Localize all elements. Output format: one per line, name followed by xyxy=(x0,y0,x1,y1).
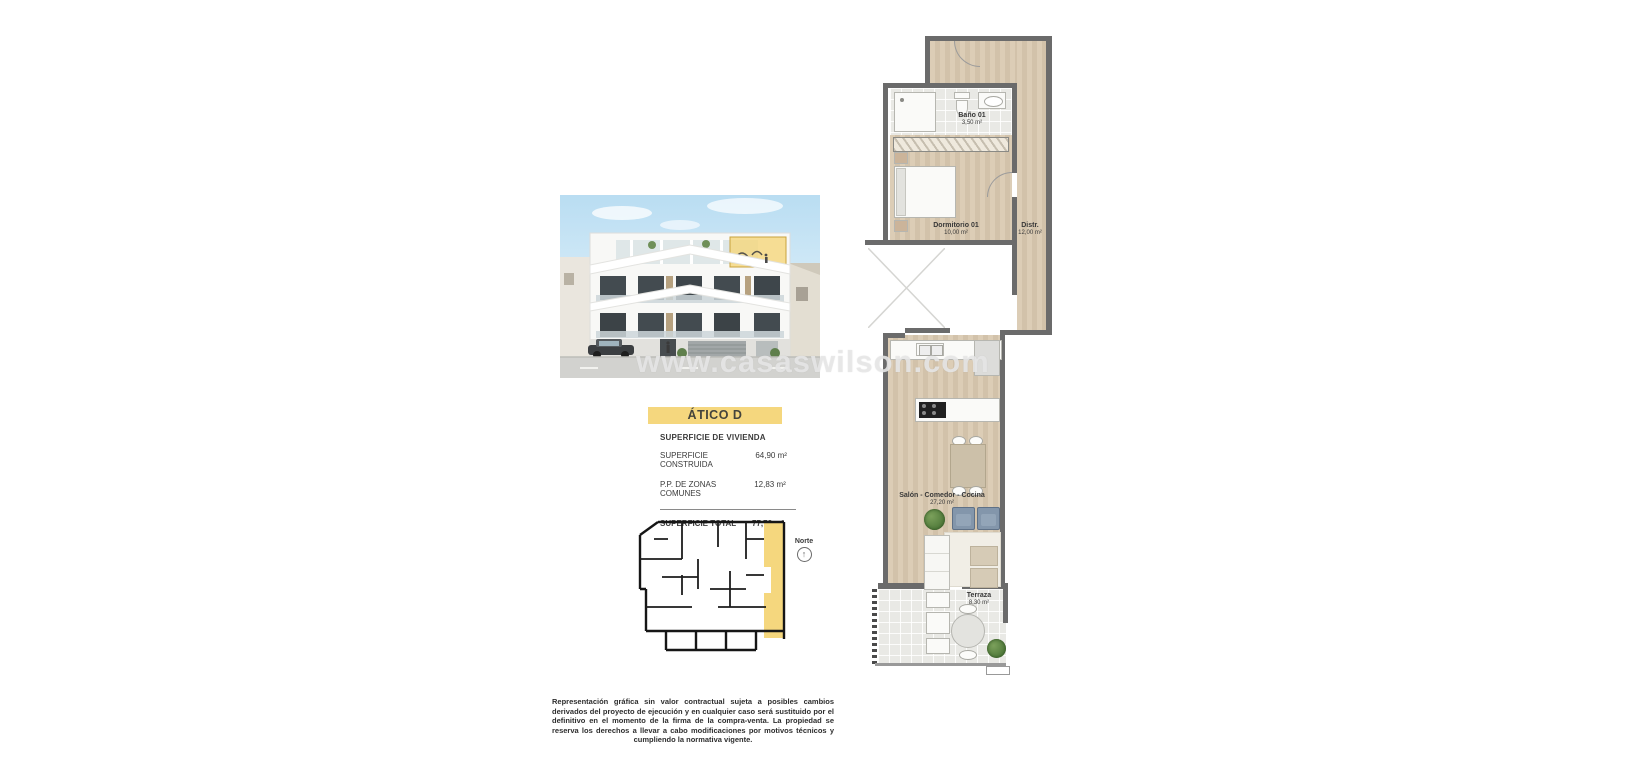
wall xyxy=(925,36,1051,41)
wall xyxy=(1012,197,1017,245)
lounge-chair xyxy=(926,612,950,634)
sink-bowl-icon xyxy=(919,345,931,356)
wardrobe xyxy=(893,137,1009,152)
wall xyxy=(888,83,1017,88)
surface-row-label: P.P. DE ZONAS COMUNES xyxy=(660,480,754,498)
key-plan xyxy=(626,519,786,653)
terrace-railing xyxy=(872,589,877,664)
lounge-chair xyxy=(926,592,950,608)
coffee-table xyxy=(970,546,998,566)
corridor-floor xyxy=(1017,41,1046,335)
terrace-chair xyxy=(959,650,977,660)
wall xyxy=(865,240,1017,245)
armchair xyxy=(952,507,975,530)
unit-title-banner: ÁTICO D xyxy=(648,407,782,424)
toilet-tank xyxy=(954,92,970,99)
nightstand xyxy=(894,152,908,164)
surface-row-value: 64,90 m² xyxy=(755,451,796,469)
washbasin-bowl-icon xyxy=(984,96,1003,107)
wall xyxy=(1046,36,1052,335)
neighbour-building-left xyxy=(560,257,594,357)
surface-divider xyxy=(660,509,796,510)
room-label-salon: Salón - Comedor - Cocina 27,20 m² xyxy=(884,492,1000,508)
floor-plan: Baño 01 3,50 m² Dormitorio 01 10,00 m² D… xyxy=(860,30,1060,680)
lightwell-void xyxy=(868,248,945,328)
wall xyxy=(1012,83,1017,173)
terrace-table xyxy=(951,614,985,648)
room-label-dormitorio: Dormitorio 01 10,00 m² xyxy=(904,222,1008,238)
sofa xyxy=(924,535,950,590)
building-render-illustration xyxy=(560,195,820,378)
cooktop-icon xyxy=(919,402,946,418)
north-arrow-icon: ↑ xyxy=(797,547,812,562)
surface-row-comunes: P.P. DE ZONAS COMUNES 12,83 m² xyxy=(660,480,796,498)
wall xyxy=(905,328,950,333)
coffee-table xyxy=(970,568,998,588)
building-render xyxy=(560,195,820,378)
wall xyxy=(925,36,930,83)
armchair xyxy=(977,507,1000,530)
wall xyxy=(888,333,905,338)
sink-bowl-icon xyxy=(931,345,943,356)
dining-table xyxy=(950,444,986,488)
wall xyxy=(1003,589,1008,623)
surface-table: SUPERFICIE DE VIVIENDA SUPERFICIE CONSTR… xyxy=(660,433,796,528)
bed-pillows xyxy=(896,168,906,216)
surface-heading: SUPERFICIE DE VIVIENDA xyxy=(660,433,796,442)
north-label: Norte xyxy=(788,538,820,545)
surface-row-label: SUPERFICIE CONSTRUIDA xyxy=(660,451,755,469)
room-label-bano: Baño 01 3,50 m² xyxy=(942,112,1002,128)
wall xyxy=(1000,330,1052,335)
plant-icon xyxy=(987,639,1006,658)
fridge-column xyxy=(974,340,1000,376)
wall xyxy=(1012,245,1017,295)
wall xyxy=(883,333,888,585)
room-label-terraza: Terraza 8,30 m² xyxy=(955,592,1003,608)
surface-row-construida: SUPERFICIE CONSTRUIDA 64,90 m² xyxy=(660,451,796,469)
lounge-chair xyxy=(926,638,950,654)
legal-disclaimer: Representación gráfica sin valor contrac… xyxy=(552,697,834,745)
neighbour-building-right xyxy=(788,263,820,357)
north-compass: Norte ↑ xyxy=(788,538,820,562)
key-plan-drawing xyxy=(626,519,786,653)
room-label-distribuidor: Distr. 12,00 m² xyxy=(1012,222,1048,238)
surface-row-value: 12,83 m² xyxy=(754,480,796,498)
plant-icon xyxy=(924,509,945,530)
terrace-planter xyxy=(986,666,1010,675)
shower-drain-icon xyxy=(900,98,904,102)
wall xyxy=(883,83,888,245)
